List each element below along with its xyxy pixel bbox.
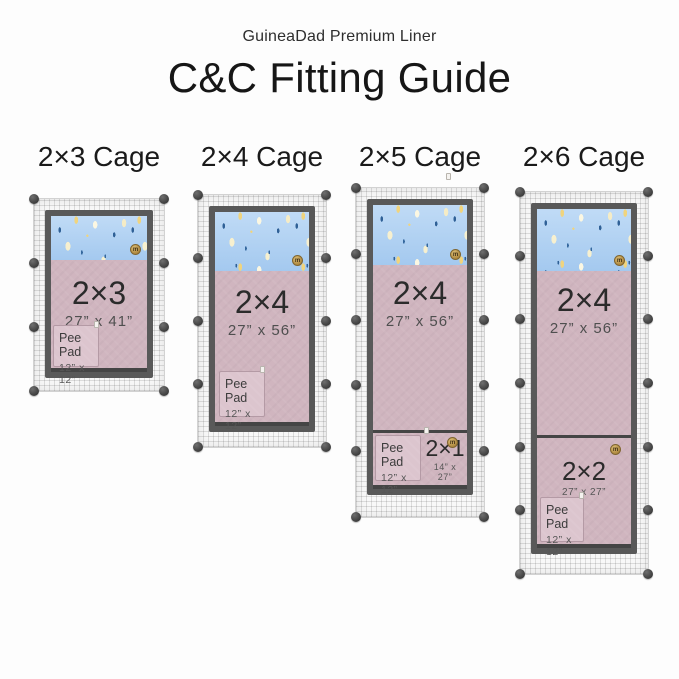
guineadad-logo-badge: m — [614, 255, 625, 266]
connector-ball — [193, 379, 203, 389]
liner-size-label: 2×4 — [215, 285, 309, 320]
connector-ball — [321, 190, 331, 200]
connector-ball — [515, 378, 525, 388]
connector-ball — [193, 442, 203, 452]
logo-glyph: m — [133, 247, 138, 253]
liner-tag — [260, 366, 265, 373]
connector-ball — [321, 253, 331, 263]
cage-heading-2x4: 2×4 Cage — [197, 140, 327, 174]
connector-ball — [643, 187, 653, 197]
connector-ball — [159, 258, 169, 268]
connector-ball — [193, 316, 203, 326]
liner-2x1-labels: 2×1 14” x 27” — [425, 433, 465, 485]
cage-2x4-interior: 2×4 27” x 56” Pee Pad 12” x 12” m — [209, 206, 315, 432]
pee-pad-label: Pee Pad — [381, 441, 420, 469]
pee-pad: Pee Pad 12” x 12” — [53, 325, 99, 367]
logo-glyph: m — [617, 258, 622, 264]
connector-ball — [515, 187, 525, 197]
fitting-guide-infographic: GuineaDad Premium Liner C&C Fitting Guid… — [0, 0, 679, 679]
connector-ball — [479, 380, 489, 390]
pee-pad-dimensions: 12” x 12” — [546, 534, 583, 558]
connector-ball — [29, 194, 39, 204]
cage-column-2x5: 2×5 Cage 2×4 27” x 56” m — [355, 140, 485, 518]
liner-2x4-body: 2×4 27” x 56” Pee Pad 12” x 12” — [215, 271, 309, 422]
liner-tag — [579, 492, 584, 499]
guineadad-logo-badge: m — [450, 249, 461, 260]
liner-2x3: 2×3 27” x 41” Pee Pad 12” x 12” m — [51, 216, 147, 368]
liner-2x1-body: Pee Pad 12” x 12” 2×1 14” x 27” m — [373, 433, 467, 485]
liner-dimensions: 27” x 56” — [215, 322, 309, 339]
cage-2x5: 2×4 27” x 56” m Pee Pad 12” x 12” — [355, 187, 485, 518]
connector-ball — [643, 569, 653, 579]
liner-tag — [446, 173, 451, 180]
page-title: C&C Fitting Guide — [0, 54, 679, 102]
connector-ball — [643, 251, 653, 261]
connector-ball — [515, 505, 525, 515]
logo-glyph: m — [613, 447, 618, 453]
connector-ball — [29, 386, 39, 396]
cage-2x6-interior: 2×4 27” x 56” m 2×2 27” x 27” Pee Pad 12… — [531, 203, 637, 554]
guineadad-logo-badge: m — [447, 437, 458, 448]
liner-2x4-in-2x5: 2×4 27” x 56” m — [373, 205, 467, 430]
pee-pad: Pee Pad 12” x 12” — [540, 497, 584, 542]
connector-ball — [351, 315, 361, 325]
liner-2x4-in-2x6: 2×4 27” x 56” m — [537, 209, 631, 435]
connector-ball — [351, 446, 361, 456]
connector-ball — [321, 442, 331, 452]
connector-ball — [479, 512, 489, 522]
connector-ball — [515, 314, 525, 324]
connector-ball — [351, 512, 361, 522]
pee-pad-label: Pee Pad — [546, 503, 583, 531]
header: GuineaDad Premium Liner C&C Fitting Guid… — [0, 28, 679, 102]
brand-line: GuineaDad Premium Liner — [0, 28, 679, 46]
connector-ball — [643, 378, 653, 388]
cage-2x5-interior: 2×4 27” x 56” m Pee Pad 12” x 12” — [367, 199, 473, 495]
connector-ball — [351, 183, 361, 193]
cage-2x4: 2×4 27” x 56” Pee Pad 12” x 12” m — [197, 194, 327, 448]
pee-pad: Pee Pad 12” x 12” — [375, 435, 421, 481]
pee-pad-dimensions: 12” x 12” — [59, 362, 98, 386]
liner-2x4-body: 2×4 27” x 56” — [537, 271, 631, 435]
connector-ball — [193, 253, 203, 263]
pee-pad-label: Pee Pad — [59, 331, 98, 359]
liner-size-label: 2×4 — [373, 276, 467, 311]
connector-ball — [29, 322, 39, 332]
pee-pad-label: Pee Pad — [225, 377, 264, 405]
pee-pad: Pee Pad 12” x 12” — [219, 371, 265, 417]
liner-tag — [94, 321, 99, 328]
connector-ball — [159, 322, 169, 332]
cage-heading-2x6: 2×6 Cage — [519, 140, 649, 174]
cage-heading-2x3: 2×3 Cage — [33, 140, 165, 174]
cage-column-2x6: 2×6 Cage 2×4 27” x 56” m 2×2 27” x — [519, 140, 649, 575]
cage-2x6: 2×4 27” x 56” m 2×2 27” x 27” Pee Pad 12… — [519, 191, 649, 575]
connector-ball — [159, 386, 169, 396]
liner-2x2: 2×2 27” x 27” Pee Pad 12” x 12” m — [537, 438, 631, 544]
logo-glyph: m — [450, 440, 455, 446]
cage-2x3-interior: 2×3 27” x 41” Pee Pad 12” x 12” m — [45, 210, 153, 378]
connector-ball — [479, 249, 489, 259]
connector-ball — [479, 183, 489, 193]
connector-ball — [479, 446, 489, 456]
pee-pad-dimensions: 12” x 12” — [225, 408, 264, 432]
guineadad-logo-badge: m — [130, 244, 141, 255]
guineadad-logo-badge: m — [292, 255, 303, 266]
liner-size-label: 2×4 — [537, 283, 631, 318]
logo-glyph: m — [295, 258, 300, 264]
connector-ball — [479, 315, 489, 325]
liner-tag — [424, 427, 429, 434]
liner-size-label: 2×2 — [537, 458, 631, 485]
liner-2x4-body: 2×4 27” x 56” — [373, 265, 467, 430]
connector-ball — [515, 251, 525, 261]
connector-ball — [643, 442, 653, 452]
logo-glyph: m — [453, 252, 458, 258]
liner-2x2-body: 2×2 27” x 27” Pee Pad 12” x 12” m — [537, 438, 631, 544]
connector-ball — [515, 569, 525, 579]
liner-2x1: Pee Pad 12” x 12” 2×1 14” x 27” m — [373, 433, 467, 485]
connector-ball — [193, 190, 203, 200]
liner-2x4: 2×4 27” x 56” Pee Pad 12” x 12” m — [215, 212, 309, 422]
liner-dimensions: 27” x 56” — [373, 313, 467, 330]
connector-ball — [351, 380, 361, 390]
pee-pad-dimensions: 12” x 12” — [381, 472, 420, 496]
guineadad-logo-badge: m — [610, 444, 621, 455]
connector-ball — [515, 442, 525, 452]
connector-ball — [321, 379, 331, 389]
liner-size-label: 2×3 — [51, 276, 147, 311]
cage-2x3: 2×3 27” x 41” Pee Pad 12” x 12” m — [33, 198, 165, 392]
cage-heading-2x5: 2×5 Cage — [355, 140, 485, 174]
liner-size-label: 2×1 — [425, 437, 464, 460]
connector-ball — [29, 258, 39, 268]
connector-ball — [643, 505, 653, 515]
liner-dimensions: 14” x 27” — [425, 462, 465, 482]
connector-ball — [351, 249, 361, 259]
connector-ball — [159, 194, 169, 204]
cage-column-2x4: 2×4 Cage 2×4 27” x 56” Pee Pad 12” x 12” — [197, 140, 327, 448]
liner-dimensions: 27” x 56” — [537, 320, 631, 337]
connector-ball — [643, 314, 653, 324]
connector-ball — [321, 316, 331, 326]
liner-2x3-body: 2×3 27” x 41” Pee Pad 12” x 12” — [51, 260, 147, 368]
cage-column-2x3: 2×3 Cage 2×3 27” x 41” Pee Pad 12” x 12” — [33, 140, 165, 392]
